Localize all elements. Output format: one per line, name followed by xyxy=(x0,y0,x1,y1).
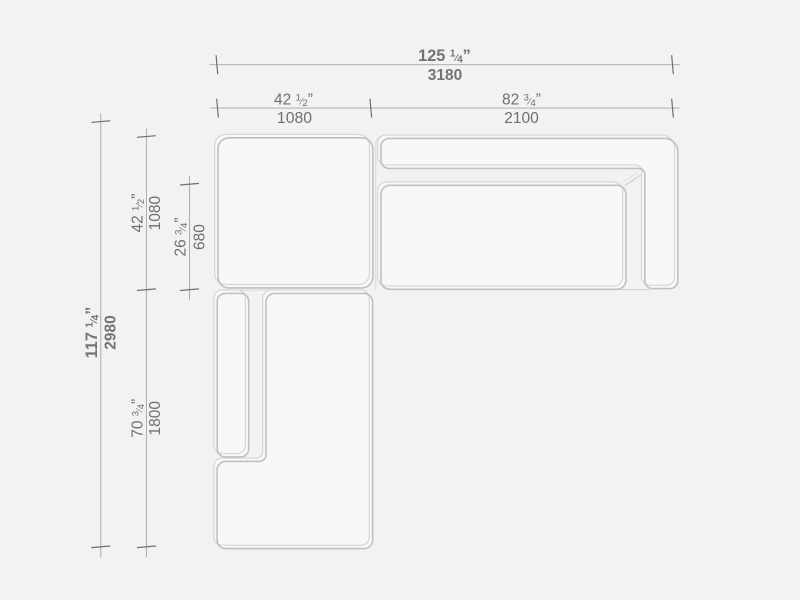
svg-text:3180: 3180 xyxy=(428,67,462,84)
svg-text:42 1⁄2”: 42 1⁄2” xyxy=(274,92,313,110)
svg-text:70 3⁄4”: 70 3⁄4” xyxy=(130,399,148,438)
svg-text:125 1⁄4”: 125 1⁄4” xyxy=(418,47,471,66)
svg-text:117 1⁄4”: 117 1⁄4” xyxy=(83,307,102,359)
svg-text:2100: 2100 xyxy=(504,110,539,127)
svg-text:1080: 1080 xyxy=(277,110,312,127)
svg-text:1080: 1080 xyxy=(147,195,164,230)
svg-text:680: 680 xyxy=(191,224,208,250)
svg-text:26 3⁄4”: 26 3⁄4” xyxy=(173,218,191,257)
svg-text:1800: 1800 xyxy=(147,401,164,436)
svg-text:2980: 2980 xyxy=(103,315,120,349)
svg-text:42 1⁄2”: 42 1⁄2” xyxy=(130,194,148,233)
svg-text:82 3⁄4”: 82 3⁄4” xyxy=(502,92,541,110)
